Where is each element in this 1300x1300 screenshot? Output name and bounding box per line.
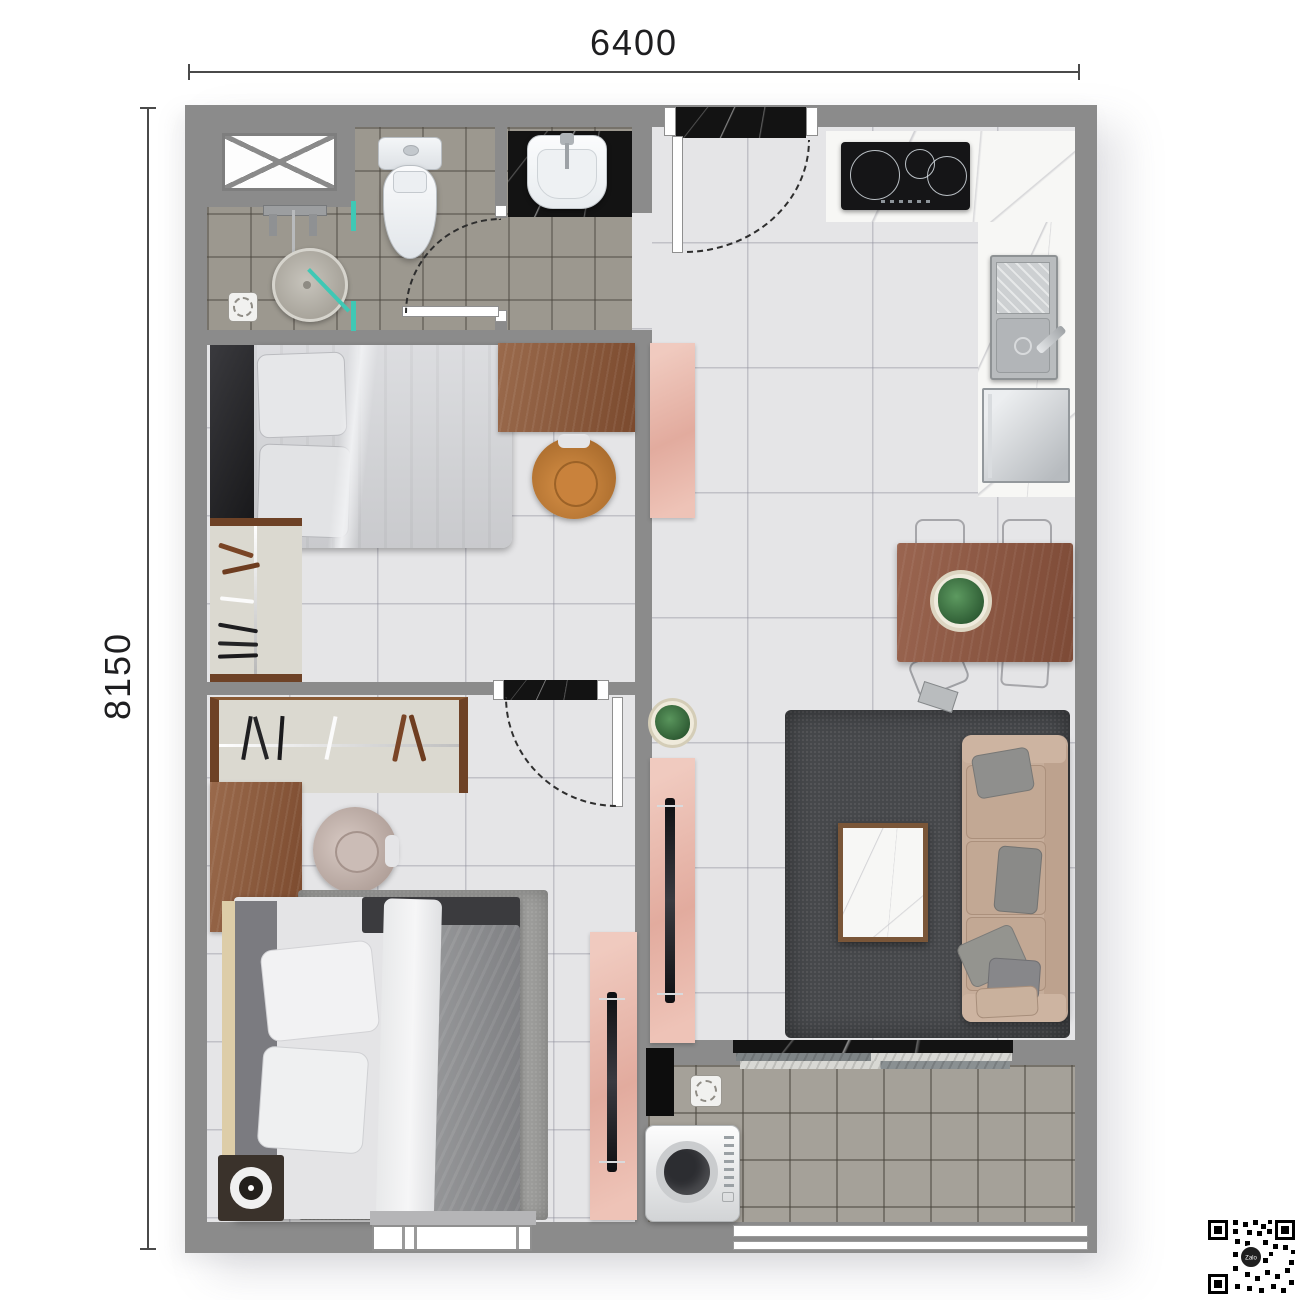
bedroom2-window-mullion-2 [414, 1227, 417, 1249]
kitchen-sink-drain [1014, 337, 1032, 355]
shower-valve-left [269, 214, 277, 236]
bedroom2-chair-opening [385, 835, 399, 867]
bedroom1-wardrobe-hanger-1 [218, 543, 254, 559]
toilet-seat-hinge [393, 171, 427, 193]
bedroom2-wardrobe-hanger-4 [324, 716, 337, 760]
sofa-pillow-2 [993, 845, 1043, 915]
bedroom1-chair-seat [554, 461, 598, 507]
bedroom1-chair [528, 437, 618, 522]
shower-floor-drain-grate [233, 297, 253, 317]
tv-living [665, 798, 675, 1003]
washing-machine-controls [724, 1136, 734, 1188]
bedroom2-speaker-dot [248, 1185, 254, 1191]
apartment-plan [185, 105, 1097, 1253]
sofa-pillow-5 [975, 985, 1038, 1018]
bedroom2-wardrobe-rail [219, 744, 459, 747]
bedroom1-wardrobe-hanger-3 [220, 596, 254, 604]
shower-tray-drain [303, 281, 311, 289]
balcony-ac-unit [646, 1048, 674, 1116]
qr-center-label: Zalo [1245, 1256, 1257, 1262]
qr-code-graphic: Zalo [1205, 1218, 1298, 1298]
bedroom1-wardrobe-hanger-4 [218, 623, 258, 634]
bedroom1-chair-opening [558, 434, 590, 448]
refrigerator-handle [988, 394, 992, 478]
entry-door-post-left [664, 107, 676, 136]
bathroom-faucet-spout [565, 143, 569, 169]
dimension-width-tick-left [188, 64, 190, 80]
bedroom2-window [372, 1225, 532, 1251]
bedroom1-pillow-1 [257, 351, 348, 438]
shower-glass-panel-bottom [351, 301, 356, 331]
bedroom2-pillow-2 [257, 1045, 370, 1154]
bedroom1-wardrobe-hanger-6 [218, 653, 258, 658]
tv-bedroom2-foot-top [599, 998, 625, 1000]
dimension-height-line [147, 107, 149, 1250]
floorplan-canvas: 6400 8150 [0, 0, 1300, 1300]
sofa [962, 735, 1068, 1022]
dimension-height-label: 8150 [97, 616, 139, 736]
balcony-slider-track-1 [736, 1053, 1012, 1061]
washing-machine [645, 1125, 740, 1222]
bedroom1-wardrobe-hanger-5 [218, 641, 258, 646]
bedroom2-wardrobe-hanger-3 [277, 716, 284, 760]
dimension-height-tick-top [140, 107, 156, 109]
bedroom2-wardrobe-hanger-1 [241, 716, 253, 760]
qr-code: Zalo [1205, 1218, 1298, 1298]
entry-door-leaf [672, 136, 683, 253]
tv-living-foot-bottom [657, 993, 683, 995]
living-plant [655, 705, 690, 740]
tv-bedroom2 [607, 992, 617, 1172]
dimension-height-tick-bottom [140, 1248, 156, 1250]
bedroom2-window-sill [370, 1211, 536, 1225]
cooktop-burner-left [850, 150, 900, 200]
dining-centerpiece-plant [938, 578, 984, 624]
bedroom2-wardrobe-hanger-6 [408, 714, 426, 762]
technical-shaft [222, 133, 337, 191]
kitchen-sink [990, 255, 1058, 380]
shower-valve-right [309, 214, 317, 236]
balcony-slider-header [733, 1040, 1013, 1053]
cooktop-burner-right [927, 156, 967, 196]
washing-machine-drawer [722, 1192, 734, 1202]
bedroom2-wardrobe-hanger-5 [392, 714, 407, 762]
toilet-door-post-top [495, 205, 507, 217]
bedroom2-window-mullion-1 [402, 1227, 405, 1249]
balcony-floor-drain-grate [695, 1080, 717, 1102]
balcony-slider-track-2 [740, 1061, 1010, 1069]
dimension-width-line [188, 71, 1080, 73]
hall-cabinet-pink [650, 343, 695, 518]
toilet-flush-button [403, 145, 419, 156]
tv-bedroom2-foot-bottom [599, 1161, 625, 1163]
sofa-backrest [1044, 741, 1068, 1016]
cooktop [841, 142, 970, 210]
shower-glass-panel-top [351, 201, 356, 231]
tv-living-foot-top [657, 805, 683, 807]
coffee-table [838, 823, 928, 942]
washing-machine-door [656, 1141, 718, 1203]
kitchen-sink-drainboard [996, 262, 1050, 314]
cooktop-controls [881, 200, 931, 203]
bedroom2-window-mullion-3 [516, 1227, 519, 1249]
dimension-width-label: 6400 [188, 22, 1080, 64]
entry-door-post-right [806, 107, 818, 136]
bedroom2-wardrobe [210, 697, 468, 793]
balcony-railing-inner [733, 1241, 1088, 1250]
bedroom2-duvet-gray [427, 925, 520, 1217]
bedroom2-sheet-fold [376, 898, 442, 1217]
bedroom2-wardrobe-hanger-2 [253, 716, 269, 759]
balcony-railing-outer [733, 1225, 1088, 1237]
refrigerator [982, 388, 1070, 483]
bedroom1-desk [498, 343, 635, 432]
bedroom1-wardrobe [210, 518, 302, 682]
bedroom2-door-post-left [493, 680, 504, 700]
bedroom2-chair-seat [335, 831, 379, 873]
bedroom2-pillow-1 [259, 939, 380, 1042]
dimension-width-tick-right [1078, 64, 1080, 80]
entry-threshold [676, 107, 806, 138]
bedroom1-wardrobe-rail [254, 526, 257, 674]
bathroom-entry-floor [632, 213, 652, 330]
bedroom2-chair [313, 805, 399, 897]
